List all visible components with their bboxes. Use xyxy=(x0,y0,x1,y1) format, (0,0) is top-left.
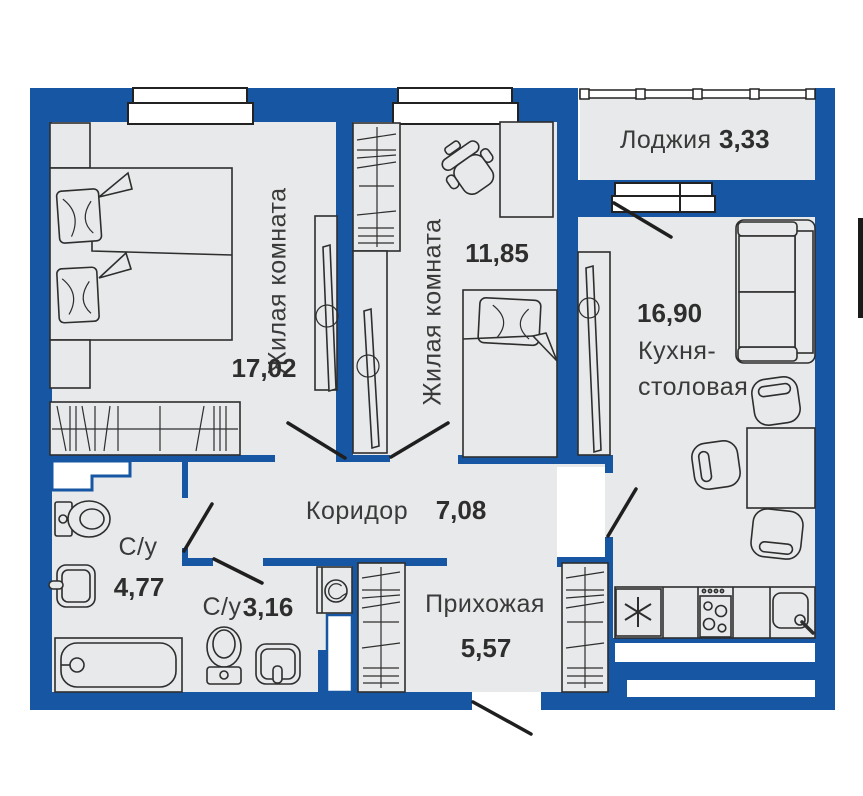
wardrobe-living2 xyxy=(353,123,400,251)
label-bath2: С/у xyxy=(203,593,242,621)
wall-right xyxy=(815,88,835,710)
label-living1: Жилая комната xyxy=(264,187,292,374)
vent-slot-2 xyxy=(627,680,815,697)
exterior-mark xyxy=(858,218,863,318)
wall-bath2-shaft-bar xyxy=(318,650,327,692)
label-bath1: С/у xyxy=(119,533,158,561)
area-living2: 11,85 xyxy=(465,238,529,268)
area-hallway: 5,57 xyxy=(461,633,512,663)
wall-bath2-top-left xyxy=(182,558,213,566)
balcony-door-unit xyxy=(612,183,715,212)
wall-partition-rooms xyxy=(336,122,353,462)
wardrobe-hall-left xyxy=(358,563,405,692)
label-hallway: Прихожая xyxy=(425,590,545,618)
label-living2: Жилая комната xyxy=(419,218,447,405)
bedside-table-top xyxy=(50,123,90,168)
pillow-2 xyxy=(57,267,100,323)
washing-machine xyxy=(317,567,352,613)
label-kitchen-line1: Кухня- xyxy=(638,337,716,365)
sink-bath2 xyxy=(256,644,300,684)
wall-left xyxy=(30,88,52,710)
tv-unit-kitchen xyxy=(578,252,610,455)
label-corridor: Коридор xyxy=(306,497,408,525)
floor-plan-svg: Жилая комната 17,02 Жилая комната 11,85 … xyxy=(0,0,863,796)
toilet-bath2 xyxy=(207,627,241,684)
area-bath1: 4,77 xyxy=(114,572,165,602)
sink-kitchen xyxy=(773,593,813,633)
wall-bottom-left xyxy=(30,692,472,710)
area-living1: 17,02 xyxy=(231,353,296,383)
wardrobe-living1 xyxy=(50,402,240,455)
label-loggia: Лоджия xyxy=(620,126,712,154)
dining-table xyxy=(747,428,815,508)
wardrobe-hall-right xyxy=(562,563,608,692)
bath2-shaft xyxy=(327,615,352,692)
stove xyxy=(700,589,731,637)
area-loggia: 3,33 xyxy=(719,124,770,154)
loggia-glazing xyxy=(580,89,815,99)
toilet-bath1 xyxy=(55,501,110,537)
tv-unit-living2 xyxy=(353,251,387,453)
armchair xyxy=(750,375,802,427)
area-corridor: 7,08 xyxy=(436,495,487,525)
door-entrance xyxy=(473,702,531,734)
vent-slot-1 xyxy=(615,643,815,662)
bathtub xyxy=(55,638,182,692)
window-living2 xyxy=(393,88,518,124)
area-kitchen: 16,90 xyxy=(637,298,702,328)
kitchen-counter xyxy=(615,587,815,638)
label-kitchen-line2: столовая xyxy=(638,373,748,401)
pillow-1 xyxy=(56,189,102,244)
desk xyxy=(500,122,553,217)
chair-bottom xyxy=(750,508,805,561)
window-living1 xyxy=(128,88,253,124)
area-bath2: 3,16 xyxy=(243,592,294,622)
tv-unit-living1 xyxy=(315,216,338,391)
wall-room2-kitchen xyxy=(557,88,578,463)
wall-room2-bottom-right xyxy=(557,455,613,464)
bedside-table-bottom xyxy=(50,340,90,388)
wall-center-stub xyxy=(345,455,390,462)
kitchen-doorway-gap xyxy=(557,467,605,557)
sofa xyxy=(736,220,815,363)
wall-corridor-left-upper xyxy=(182,458,188,498)
chair-left xyxy=(690,439,742,491)
floor-plan: Жилая комната 17,02 Жилая комната 11,85 … xyxy=(0,0,863,796)
bed-single xyxy=(463,290,557,457)
wall-kitchen-door-stub xyxy=(605,463,613,473)
